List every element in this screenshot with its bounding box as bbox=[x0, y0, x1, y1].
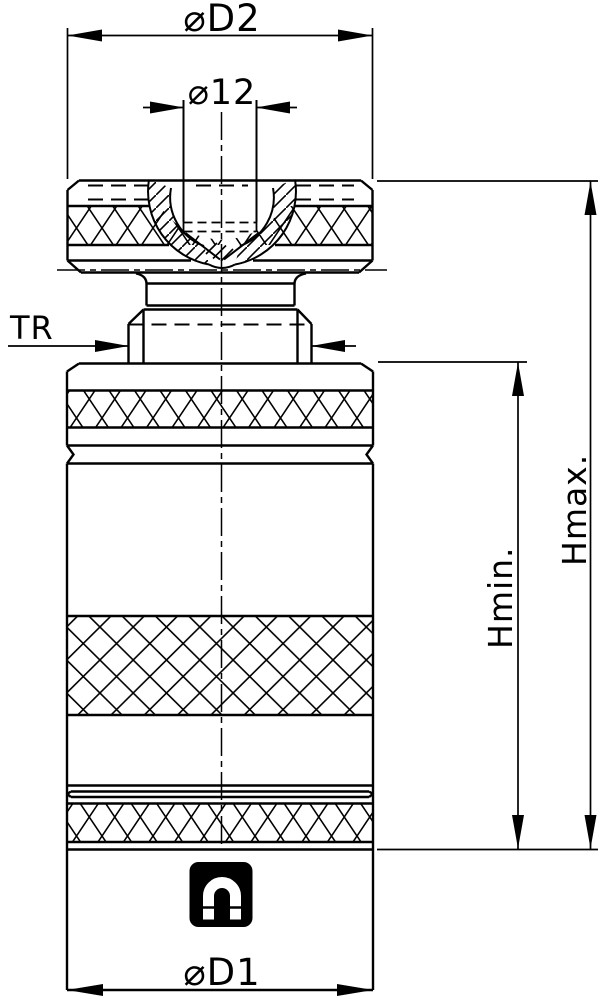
body-knurl-band-1 bbox=[67, 391, 373, 428]
dim-label-d2: ⌀D2 bbox=[183, 0, 260, 40]
magnet-icon-plate bbox=[190, 862, 253, 927]
dim-label-d1: ⌀D1 bbox=[183, 951, 260, 994]
body-knurl-band-3 bbox=[67, 804, 373, 843]
drawing-svg: ⌀D2 ⌀12 TR Hmin. Hmax. ⌀D1 bbox=[0, 0, 602, 1000]
dim-label-hmin: Hmin. bbox=[481, 546, 520, 649]
magnet-icon bbox=[190, 862, 253, 927]
technical-drawing: ⌀D2 ⌀12 TR Hmin. Hmax. ⌀D1 bbox=[0, 0, 602, 1000]
dim-label-hmax: Hmax. bbox=[555, 454, 594, 566]
body-knurl-band-2 bbox=[67, 616, 373, 715]
dim-label-tr: TR bbox=[9, 309, 54, 347]
dim-label-d12: ⌀12 bbox=[188, 73, 257, 113]
